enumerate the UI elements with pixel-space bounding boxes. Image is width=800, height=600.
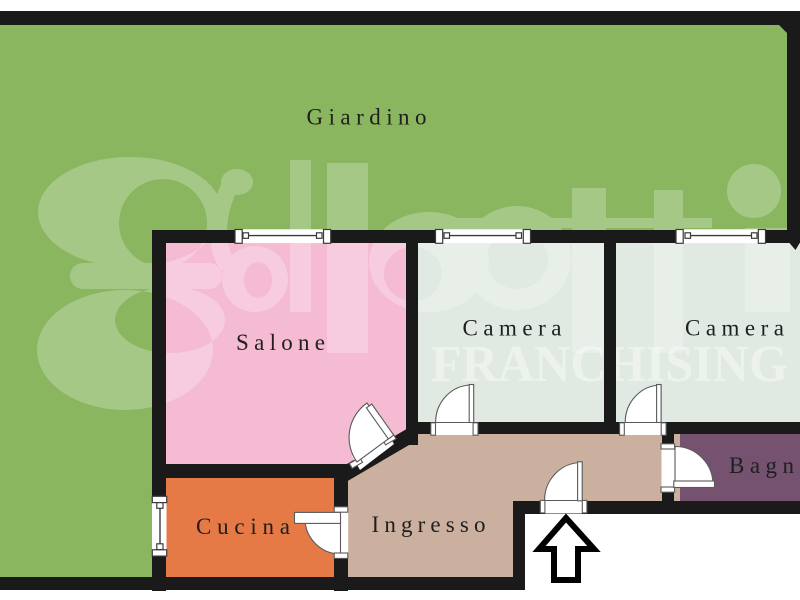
svg-text:Bagno: Bagno [729, 453, 800, 478]
